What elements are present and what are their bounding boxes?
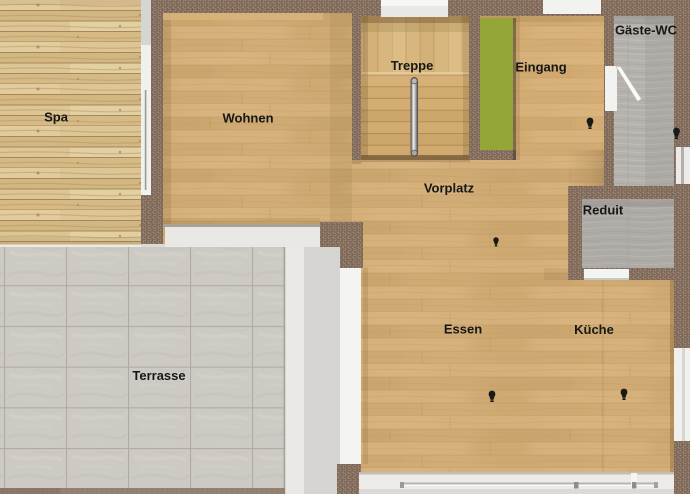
svg-text:Essen: Essen [444, 322, 482, 337]
svg-text:Wohnen: Wohnen [222, 111, 273, 126]
svg-text:Reduit: Reduit [583, 203, 624, 218]
svg-text:Treppe: Treppe [391, 58, 434, 73]
svg-text:Küche: Küche [574, 322, 614, 337]
svg-text:Terrasse: Terrasse [132, 368, 185, 383]
svg-text:Eingang: Eingang [515, 60, 566, 75]
svg-text:Spa: Spa [44, 110, 69, 125]
svg-text:Vorplatz: Vorplatz [424, 181, 475, 196]
svg-text:Gäste-WC: Gäste-WC [615, 23, 678, 38]
